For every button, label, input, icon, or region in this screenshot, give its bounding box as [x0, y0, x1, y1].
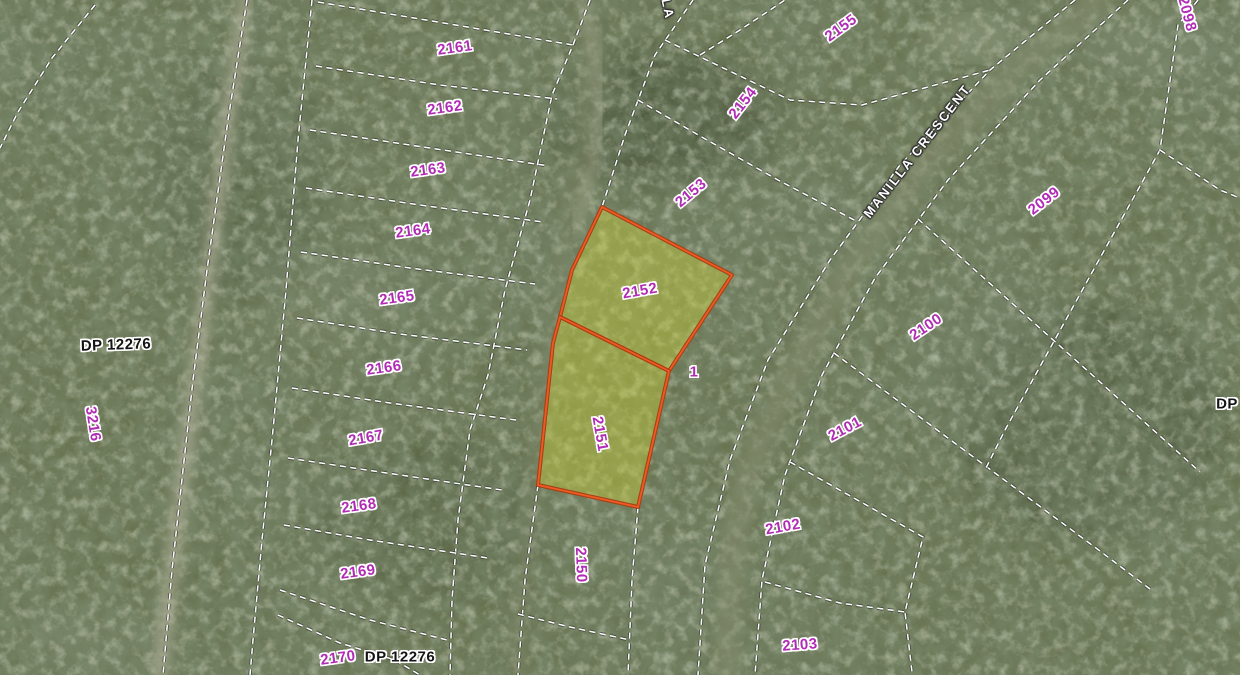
parcel-label-2103: 2103: [782, 636, 818, 653]
plan-label-dp: DP: [1216, 397, 1238, 412]
parcel-label-2150: 2150: [573, 547, 589, 583]
aerial-cadastral-map[interactable]: 2161216221632164216521662167216821692170…: [0, 0, 1240, 675]
plan-label-dp-12276: DP 12276: [81, 336, 152, 353]
plan-label-dp-12276: DP 12276: [771, 0, 841, 1]
street-label-la: LA: [659, 0, 676, 21]
parcel-label-1: 1: [690, 365, 699, 380]
plan-label-dp-12276: DP 12276: [365, 650, 435, 665]
map-canvas: [0, 0, 1240, 675]
